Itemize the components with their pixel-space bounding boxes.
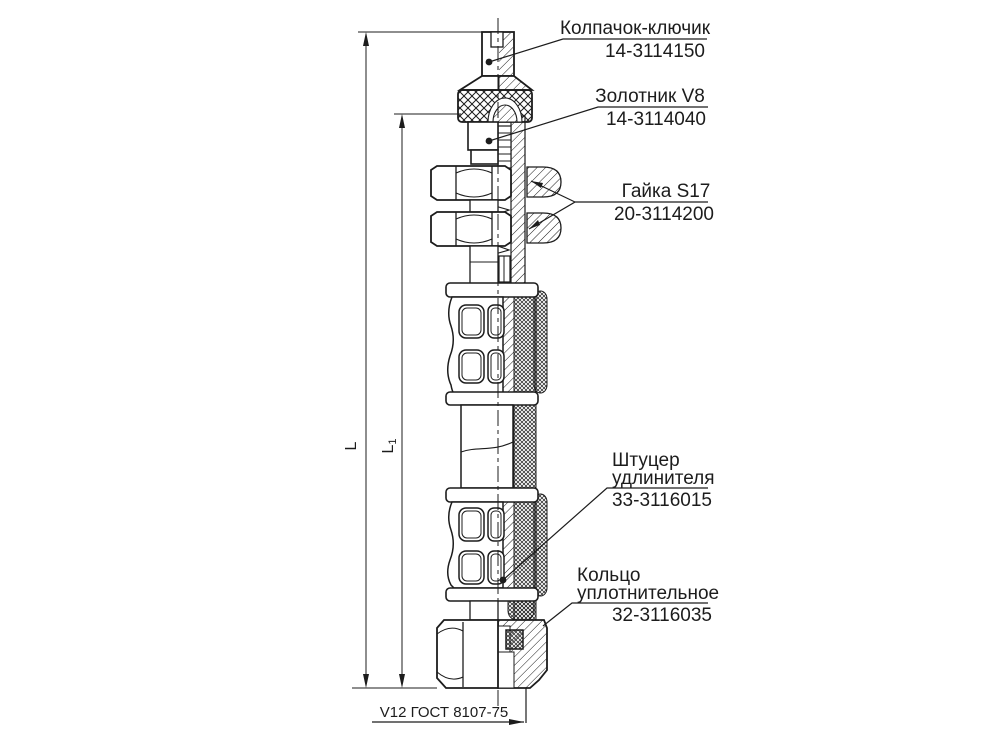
callout-valve-core-number: 14-3114040 (606, 109, 706, 130)
callout-fitting-name-line2: удлинителя (612, 468, 715, 489)
nut-upper-front (431, 166, 511, 200)
sealing-ring-section (506, 630, 523, 649)
dimension-label-L: L (343, 441, 360, 450)
callout-valve-core-name: Золотник V8 (595, 86, 705, 107)
arrowhead (363, 32, 369, 46)
valve-standard-label: V12 ГОСТ 8107-75 (380, 704, 509, 721)
leader-dot (486, 138, 493, 145)
callout-fitting-number: 33-3116015 (612, 490, 712, 511)
callout-cap-name: Колпачок-ключик (560, 18, 711, 39)
callout-cap-number: 14-3114150 (605, 41, 705, 62)
assembly-body (431, 18, 561, 706)
callout-ring-number: 32-3116035 (612, 605, 712, 626)
nut-lower-front (431, 212, 511, 246)
grip-hole (488, 305, 504, 338)
rubber-bulge-lower (534, 494, 547, 596)
valve-stem-body (468, 122, 498, 164)
leader-dot (500, 577, 507, 584)
bottom-fitting (437, 620, 547, 688)
dimension-label-L1: L1 (380, 438, 399, 453)
arrowhead (399, 674, 405, 688)
leader-dot (486, 59, 493, 66)
grip-hole (488, 350, 504, 383)
valve-extension-drawing: L L1 Колпачок-ключик 14-3114150 Золотник… (0, 0, 1000, 750)
cap-key (458, 32, 532, 122)
tube-wall-section (511, 116, 525, 288)
technical-drawing-page: L L1 Колпачок-ключик 14-3114150 Золотник… (0, 0, 1000, 750)
nut-lower-section (527, 213, 561, 243)
arrowhead (399, 114, 405, 128)
arrowhead (509, 719, 524, 725)
cap-slot (491, 32, 503, 47)
hose-tube (461, 405, 513, 488)
rubber-bulge-upper (534, 291, 547, 393)
callout-nut-name: Гайка S17 (622, 181, 711, 202)
callout-ring-name-line2: уплотнительное (577, 583, 719, 604)
grip-hole (488, 508, 504, 541)
arrowhead (363, 674, 369, 688)
callout-texts: Колпачок-ключик 14-3114150 Золотник V8 1… (380, 18, 719, 721)
callout-nut-number: 20-3114200 (614, 204, 714, 225)
